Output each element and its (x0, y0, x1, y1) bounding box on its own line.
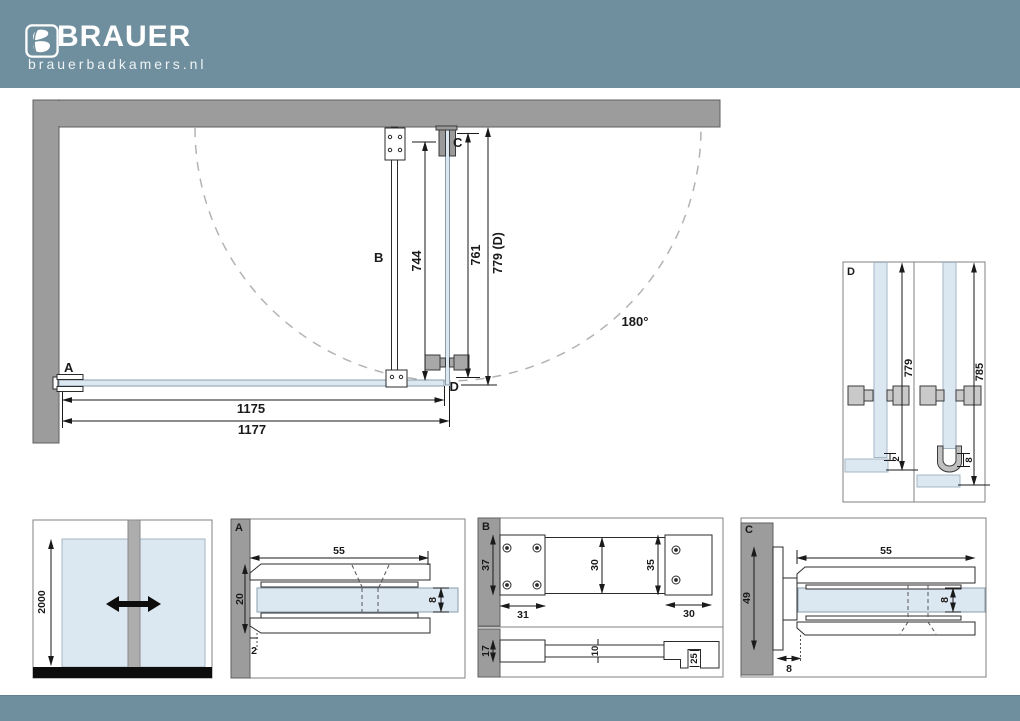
detail-b-side-block (500, 640, 545, 662)
detail-b-dim-17: 17 (480, 645, 492, 657)
detail-a-dim-8: 8 (427, 597, 439, 603)
detail-c-label: C (745, 524, 753, 536)
dim-761: 761 (469, 245, 483, 266)
plan-label-b: B (374, 250, 383, 265)
detail-b-panel: B 37 31 (478, 518, 723, 677)
detail-a-panel: A 5 (231, 519, 465, 678)
detail-c-dim-55: 55 (880, 545, 892, 557)
dim-744: 744 (410, 251, 424, 272)
plan-view: 180° A B (33, 100, 720, 443)
technical-drawing: 180° A B (0, 0, 1020, 721)
detail-a-dim-2: 2 (251, 645, 257, 657)
detail-b-dim-30-plate: 30 (683, 608, 695, 620)
detail-b-dim-31: 31 (517, 609, 529, 621)
detail-b-dim-37: 37 (480, 559, 492, 571)
detail-b-dim-25: 25 (689, 653, 700, 664)
detail-d-panel: D 779 2 (843, 262, 990, 502)
elevation-panel: 2000 (33, 520, 212, 678)
plan-label-a: A (64, 360, 74, 375)
detail-b-dim-30-bar: 30 (589, 559, 601, 571)
detail-d-dim-785: 785 (974, 363, 986, 381)
plan-label-d: D (450, 379, 459, 394)
detail-c-panel: C (741, 518, 986, 677)
detail-b-dim-35: 35 (645, 559, 657, 571)
detail-c-dim-8-glass: 8 (939, 597, 951, 603)
door-glass-panel (446, 128, 450, 385)
detail-a-dim-20: 20 (234, 593, 246, 605)
dim-779d: 779 (D) (491, 232, 505, 274)
detail-c-dim-49: 49 (741, 592, 753, 604)
elevation-post (128, 520, 140, 668)
dim-1177: 1177 (238, 422, 266, 437)
dim-1175: 1175 (237, 401, 265, 416)
detail-a-dim-55: 55 (333, 545, 345, 557)
detail-d-dim-779: 779 (903, 359, 915, 377)
detail-a-label: A (235, 522, 243, 534)
swing-angle-label: 180° (622, 314, 649, 329)
footer (0, 695, 1020, 721)
detail-d-dim-8: 8 (964, 457, 975, 462)
detail-d-label: D (847, 266, 855, 278)
elevation-floor (33, 667, 212, 678)
page: BRAUER brauerbadkamers.nl 180° (0, 0, 1020, 721)
detail-b-dim-10: 10 (590, 646, 601, 657)
stabilizer-bar (385, 127, 407, 387)
detail-b-label: B (482, 521, 490, 533)
plan-label-c: C (453, 135, 463, 150)
detail-c-glass (798, 588, 985, 612)
detail-c-dim-8-offset: 8 (786, 663, 792, 675)
dim-2000: 2000 (36, 590, 48, 614)
detail-d-dim-2: 2 (891, 456, 902, 461)
